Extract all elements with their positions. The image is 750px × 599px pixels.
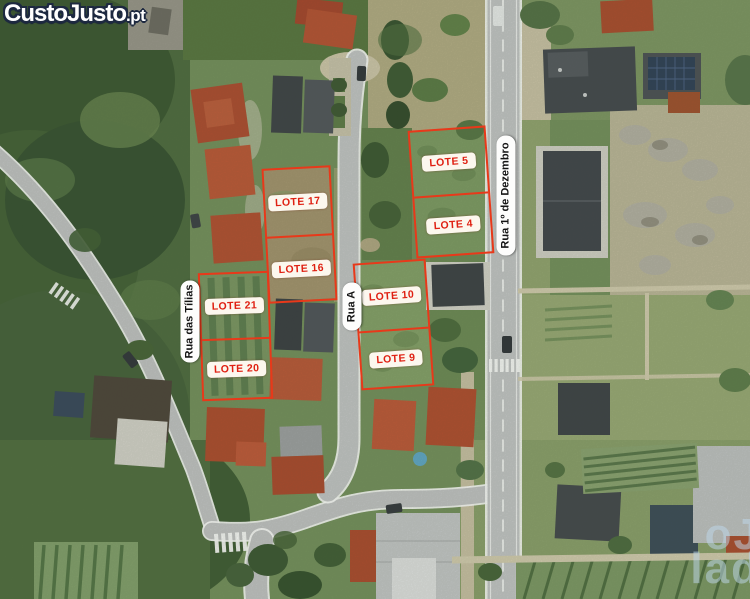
- lot-block-10-9: LOTE 10 LOTE 9: [353, 259, 435, 391]
- logo-text: CustoJusto: [4, 0, 126, 27]
- lot-21: LOTE 21: [200, 273, 269, 339]
- street-label-rua-das-tilias: Rua das Tílias: [181, 281, 200, 363]
- lot-4-label: LOTE 4: [426, 215, 480, 235]
- lot-4: LOTE 4: [414, 191, 492, 256]
- lot-16: LOTE 16: [267, 233, 335, 301]
- lot-21-label: LOTE 21: [204, 297, 264, 315]
- lot-9-label: LOTE 9: [369, 349, 423, 369]
- lot-9: LOTE 9: [359, 327, 432, 389]
- lot-block-17-16: LOTE 17 LOTE 16: [262, 165, 338, 303]
- aerial-listing-photo[interactable]: LOTE 17 LOTE 16 LOTE 21 LOTE 20 LOTE 5 L…: [0, 0, 750, 599]
- street-label-rua-1-de-dezembro: Rua 1º de Dezembro: [497, 136, 516, 256]
- lot-20: LOTE 20: [202, 337, 271, 399]
- lot-block-5-4: LOTE 5 LOTE 4: [408, 125, 495, 258]
- lot-16-label: LOTE 16: [271, 259, 331, 278]
- lot-20-label: LOTE 20: [207, 360, 267, 378]
- lot-5: LOTE 5: [410, 128, 488, 197]
- lot-5-label: LOTE 5: [422, 152, 476, 172]
- lot-10-label: LOTE 10: [361, 286, 421, 306]
- lot-17: LOTE 17: [264, 167, 332, 236]
- lot-17-label: LOTE 17: [268, 193, 328, 212]
- logo-suffix: .pt: [126, 6, 145, 25]
- lot-block-21-20: LOTE 21 LOTE 20: [198, 271, 273, 401]
- custojusto-logo: CustoJusto.pt: [4, 0, 145, 28]
- lot-10: LOTE 10: [355, 261, 428, 332]
- street-label-rua-a: Rua A: [343, 283, 362, 331]
